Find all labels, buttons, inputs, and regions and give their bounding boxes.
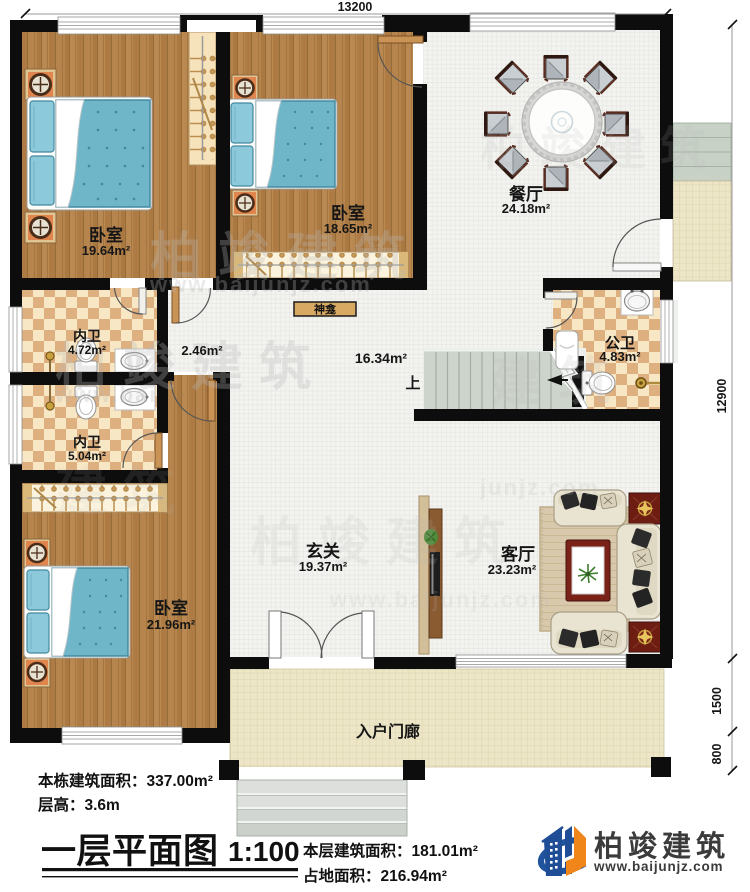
svg-text:19.64m²: 19.64m² — [82, 243, 131, 258]
svg-text:神龛: 神龛 — [314, 302, 337, 316]
svg-text:www.baijunjz.com: www.baijunjz.com — [149, 272, 372, 297]
svg-text:4.83m²: 4.83m² — [599, 349, 641, 364]
svg-text:柏竣建筑: 柏竣建筑 — [250, 514, 522, 572]
svg-text:13200: 13200 — [338, 0, 373, 14]
svg-text:19.37m²: 19.37m² — [299, 559, 348, 574]
svg-text:4.72m²: 4.72m² — [68, 343, 106, 357]
svg-text:23.23m²: 23.23m² — [488, 562, 537, 577]
svg-text:内卫: 内卫 — [73, 328, 101, 344]
svg-text:junjz.com: junjz.com — [479, 475, 599, 500]
svg-text:卧室: 卧室 — [331, 203, 365, 223]
svg-text:柏竣建筑: 柏竣建筑 — [594, 829, 730, 863]
svg-text:12900: 12900 — [715, 379, 729, 414]
svg-text:16.34m²: 16.34m² — [355, 350, 407, 366]
svg-text:柏竣建筑: 柏竣建筑 — [480, 123, 720, 175]
svg-text:上: 上 — [405, 375, 420, 392]
svg-text:1:100: 1:100 — [228, 836, 300, 867]
svg-text:内卫: 内卫 — [73, 434, 101, 450]
svg-text:5.04m²: 5.04m² — [68, 449, 106, 463]
svg-text:24.18m²: 24.18m² — [502, 201, 551, 216]
svg-text:层高：3.6m: 层高：3.6m — [38, 795, 120, 814]
svg-text:18.65m²: 18.65m² — [324, 221, 373, 236]
svg-text:玄关: 玄关 — [306, 541, 340, 561]
svg-text:本栋建筑面积：337.00m²: 本栋建筑面积：337.00m² — [38, 771, 213, 790]
svg-text:www.baijunjz.com: www.baijunjz.com — [593, 859, 723, 874]
svg-text:卧室: 卧室 — [89, 225, 123, 245]
svg-text:卧室: 卧室 — [154, 598, 188, 618]
svg-text:800: 800 — [710, 744, 724, 765]
svg-text:客厅: 客厅 — [500, 544, 535, 564]
svg-text:一层平面图: 一层平面图 — [41, 832, 219, 871]
svg-text:www.baijunjz.com: www.baijunjz.com — [329, 587, 552, 612]
svg-text:本层建筑面积：181.01m²: 本层建筑面积：181.01m² — [303, 841, 478, 860]
svg-text:建筑: 建筑 — [55, 464, 191, 522]
svg-text:21.96m²: 21.96m² — [147, 617, 196, 632]
svg-text:入户门廊: 入户门廊 — [356, 722, 420, 741]
svg-text:1500: 1500 — [710, 687, 724, 715]
svg-text:占地面积：216.94m²: 占地面积：216.94m² — [303, 866, 447, 885]
svg-text:2.46m²: 2.46m² — [181, 343, 223, 358]
svg-text:www.bai: www.bai — [54, 382, 157, 407]
